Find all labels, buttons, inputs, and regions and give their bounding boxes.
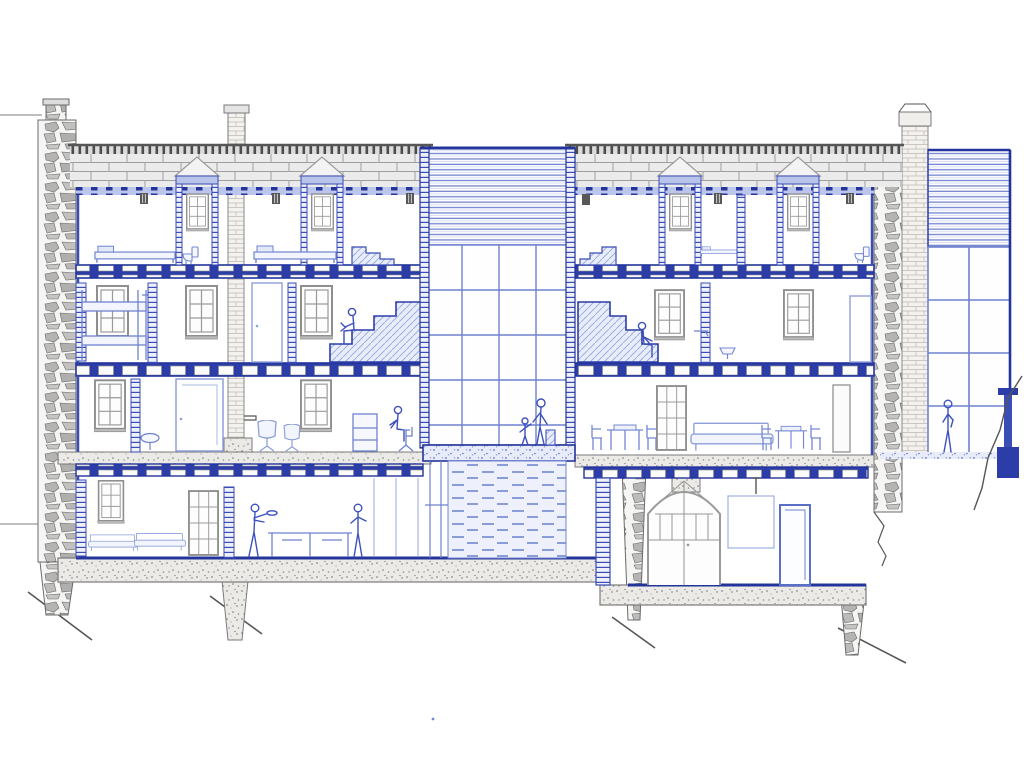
dormer-left-1 [175,157,219,265]
dormer-wall [212,176,218,265]
glazed-door [189,491,218,555]
dormer-window [186,194,209,231]
vent-grille [406,193,414,204]
basement-slab-left [58,558,600,582]
sofa [691,423,773,450]
batten-deck-right [567,154,902,187]
rafter-row-right [567,146,902,154]
window [300,380,332,431]
attic-toilet-right [855,247,869,263]
conservatory-louvre-screen [928,150,1010,247]
section-drawing [0,0,1024,768]
eave-band-left [76,187,431,195]
vent-grille [846,193,854,204]
blue-door [850,296,871,362]
dining-table [775,426,807,448]
atrium-lower-glazing [425,461,448,558]
centre-chimney-cap [224,105,249,113]
basement-ceiling-left [76,464,423,476]
stair-right-block [578,302,658,362]
attic-stair-arrival-left [352,247,394,265]
figure-cook [249,504,277,556]
window [300,286,333,339]
attic-stair-arrival-right [580,247,616,265]
dining-table [607,425,643,450]
flue-box [582,194,590,205]
dormer-window [669,194,692,231]
attic-post [737,195,745,265]
figure-standing-basement [351,504,366,557]
ground-slab-right [575,455,874,467]
attic-floor-right [575,265,874,278]
footing-pier-left [222,581,248,640]
door-frame [833,385,850,452]
second-floor-right [575,363,874,376]
window [94,380,126,431]
atrium-louvre-screen [425,148,573,245]
window [783,290,814,340]
rafter-row-left [70,146,431,154]
second-floor-left [76,363,431,376]
dormer-head [176,176,218,184]
centre-chimney-top [228,112,245,144]
dining-chair [592,425,602,450]
left-chimney-stack [46,103,66,121]
ground-slab-left [58,452,431,464]
basement-window [98,481,124,523]
conservatory-glazing-grid [928,247,1010,453]
atrium-core-wall [448,461,566,558]
right-wall-rock-edge [874,512,886,566]
dormer-wall [176,176,182,265]
batten-deck-left [70,154,431,187]
dining-chair [762,425,772,450]
brick-chimney-cap [899,112,931,126]
blue-double-door [176,379,223,451]
dormer-right-1 [658,157,702,265]
atrium-post-right [566,148,575,448]
dining-chair [811,425,821,450]
basement-slab-right [600,585,866,605]
armchair [284,424,300,451]
dining-chair [647,425,657,450]
desk-cabinet [353,414,377,451]
basin [720,348,735,359]
arched-door [648,481,720,585]
basement-ceiling-right [584,467,868,478]
dormer-left-2 [300,157,344,265]
brick-chimney-crown [899,104,931,112]
blue-door [252,283,282,362]
french-door [657,386,686,450]
wall-lining-post [76,283,86,361]
partition-post [288,283,296,363]
architectural-section-canvas [0,0,1024,768]
atrium-ladder [596,478,610,585]
partition-post [701,283,710,363]
partition-post [131,379,140,452]
window [96,286,129,339]
atrium-glazing-grid [425,245,573,445]
left-chimney-cap [43,99,69,105]
vent-grille [140,193,148,204]
vent-grille [272,193,280,204]
basement-sofa [89,535,138,551]
basement-sofa [135,534,186,551]
wall-panel [728,496,774,548]
wall-lining-post [76,480,86,556]
atrium-post-left [420,148,429,448]
attic-floor-left [76,265,431,278]
partition-post [148,283,157,363]
dormer-right-2 [776,157,820,265]
kitchen-counter [268,533,352,557]
ink-speck [432,718,435,721]
brick-chimney-shaft [902,125,928,457]
window [654,290,685,340]
suitcase [546,430,555,445]
floor-sink [141,434,159,451]
attic-bed-centre [254,246,336,263]
dormer-window [787,194,810,231]
partition-post [224,487,234,558]
attic-toilet [183,247,198,264]
dormer-window [311,194,334,231]
atrium-landing-slab [423,445,575,461]
vent-grille [714,193,722,204]
fireplace-shelf [244,416,256,420]
attic-bed-left [95,246,175,263]
window [185,286,218,339]
office-chair-figure [390,406,413,451]
dropped-beam-bracket [753,478,759,494]
basement-glazing-mullions [374,478,418,556]
armchair [258,420,276,451]
office-chair [399,427,413,451]
